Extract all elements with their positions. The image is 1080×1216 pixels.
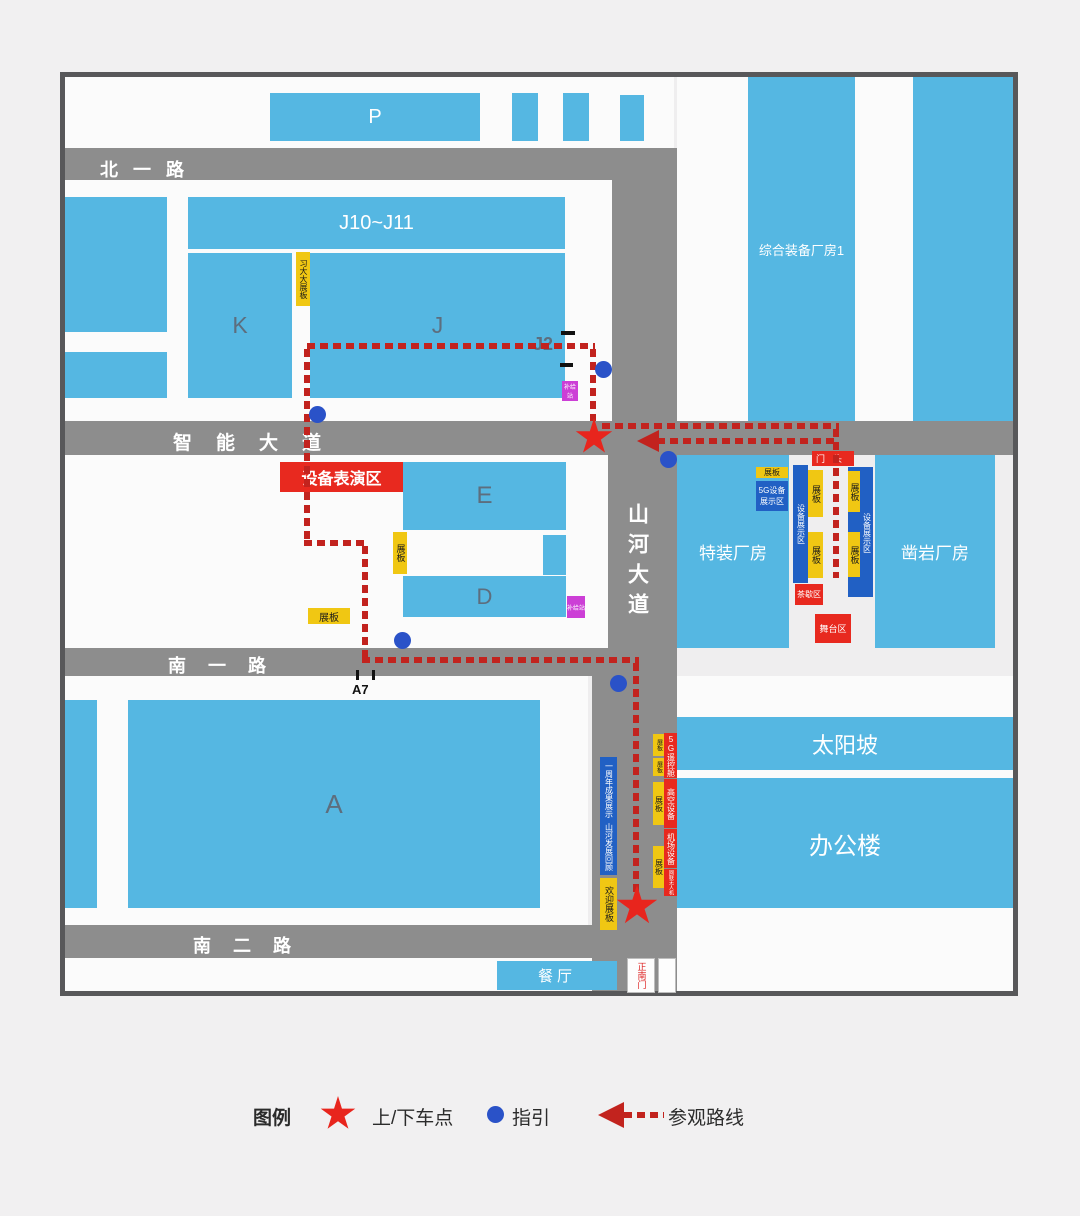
building-restaurant: 餐厅	[497, 961, 617, 990]
route-segment-shanhe	[633, 663, 639, 895]
sg-remote-cabin: 5G遥控舱	[664, 733, 677, 778]
south-gate-label: 正南门	[637, 962, 646, 989]
anniversary-text: 一周年成果展示	[605, 762, 613, 818]
display-board-v1: 展板	[808, 470, 823, 517]
display-board-s1: 展板	[653, 734, 664, 756]
road-label-north-1: 北一路	[100, 156, 199, 182]
a7-tick-1	[356, 670, 359, 680]
guide-dot-5	[610, 675, 627, 692]
equipment-display-bar-left: 设备展示区	[793, 465, 808, 583]
legend-route-arrow-icon	[598, 1102, 624, 1128]
legend-guide-label: 指引	[512, 1103, 550, 1130]
route-segment-gate-head	[833, 429, 839, 578]
road-south-2	[65, 925, 677, 958]
road-label-south-1: 南一路	[168, 652, 288, 678]
building-a: A	[128, 700, 540, 908]
display-board-top: 展板	[756, 467, 788, 478]
route-segment-turn	[304, 540, 368, 546]
supply-station-south: 补给站	[567, 596, 585, 618]
route-segment-j	[307, 343, 595, 349]
equipment-display-right-label: 设备展示区	[861, 480, 872, 585]
route-segment-down	[362, 546, 368, 659]
legend-dot-icon	[487, 1106, 504, 1123]
welcome-board: 欢迎展板	[600, 878, 617, 930]
road-label-smart-avenue: 智能大道	[173, 428, 345, 455]
building-sun-slope: 太阳坡	[677, 717, 1013, 770]
guide-dot-4	[394, 632, 411, 649]
guide-dot-3	[660, 451, 677, 468]
building-integrated-plant: 综合装备厂房1	[748, 77, 855, 421]
building-small-2	[563, 93, 589, 141]
building-small-3	[620, 95, 644, 141]
building-left-small	[65, 352, 167, 398]
route-segment-to-star	[590, 349, 596, 421]
building-e: E	[403, 462, 566, 530]
review-text: 山河发展回顾	[605, 823, 613, 871]
building-small-1	[512, 93, 538, 141]
j2-tick-bottom	[560, 363, 573, 367]
route-segment-return	[657, 438, 835, 444]
display-board-v3: 展板	[848, 471, 860, 512]
road-north-vertical	[612, 180, 677, 421]
networked-drone: 网联无人机	[664, 869, 677, 896]
legend: 图例 上/下车点 指引 参观路线	[253, 1094, 813, 1138]
display-board-s2: 展板	[653, 758, 664, 776]
gate-box-2	[658, 958, 676, 993]
building-right-tall-2	[913, 77, 1013, 421]
display-board-v2: 展板	[808, 532, 823, 578]
anniversary-banner: 一周年成果展示 山河发展回顾	[600, 757, 617, 875]
building-left-big	[65, 197, 167, 332]
legend-route-label: 参观路线	[668, 1103, 744, 1130]
road-label-shanhe: 山河大道	[624, 500, 650, 626]
building-d: D	[403, 576, 566, 617]
road-label-south-2: 南二路	[193, 932, 313, 958]
legend-route-dash	[624, 1112, 664, 1118]
route-arrow	[637, 430, 659, 452]
stage-zone: 舞台区	[815, 614, 851, 643]
building-p: P	[270, 93, 480, 141]
legend-title: 图例	[253, 1103, 291, 1130]
building-office: 办公楼	[677, 778, 1013, 908]
route-segment-showzone	[304, 349, 310, 543]
building-j: J	[310, 253, 565, 398]
south-gate: 正南门	[627, 958, 655, 993]
display-board-ed-gap: 展板	[393, 532, 407, 574]
supply-station-north: 补给站	[562, 381, 578, 401]
a7-label: A7	[352, 682, 369, 697]
legend-star-icon	[320, 1096, 356, 1132]
guide-dot-1	[309, 406, 326, 423]
aerial-equipment: 高空设备	[664, 779, 677, 828]
display-board-h: 展板	[308, 608, 350, 624]
building-rock-drill-plant: 凿岩厂房	[875, 455, 995, 648]
building-ed-connector	[543, 535, 566, 575]
display-board-v4: 展板	[848, 532, 860, 577]
xidada-board: 习大大展板	[296, 252, 310, 306]
j2-tick-top	[561, 331, 575, 335]
equipment-show-zone: 设备表演区	[280, 462, 403, 492]
route-segment-avenue-east	[602, 423, 839, 429]
tea-break-zone: 茶歇区	[795, 584, 823, 605]
route-segment-south1	[362, 657, 639, 663]
display-board-s4: 展板	[653, 846, 664, 888]
guide-dot-2	[595, 361, 612, 378]
airport-equipment: 机场设备	[664, 829, 677, 868]
building-a-sliver	[65, 700, 97, 908]
a7-tick-2	[372, 670, 375, 680]
building-j10-j11: J10~J11	[188, 197, 565, 249]
sg-display-zone: 5G设备展示区	[756, 481, 788, 511]
legend-pickup-label: 上/下车点	[372, 1103, 453, 1130]
building-k: K	[188, 253, 292, 398]
display-board-s3: 展板	[653, 782, 664, 825]
